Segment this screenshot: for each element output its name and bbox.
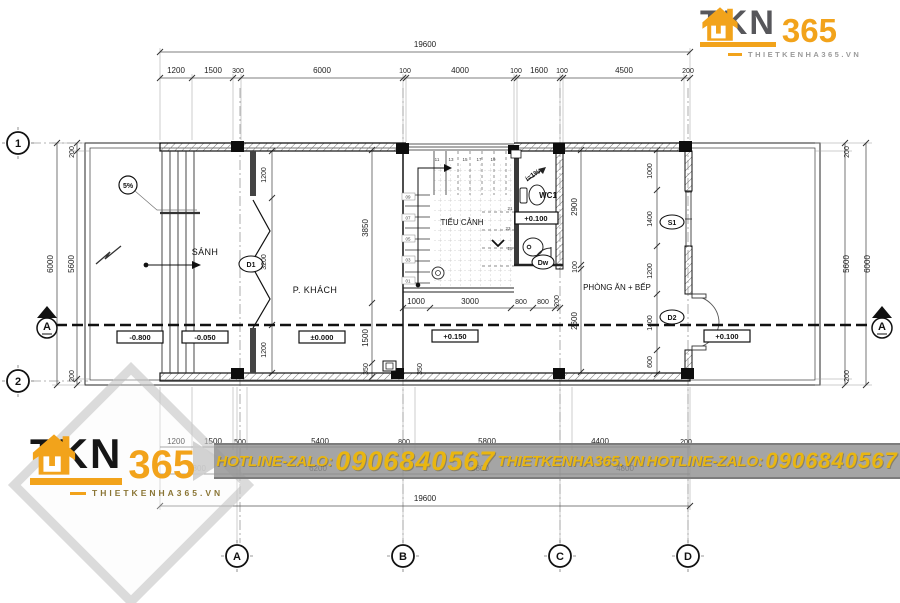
- planter-box: [383, 361, 396, 371]
- svg-text:13: 13: [448, 157, 454, 162]
- svg-text:1600: 1600: [530, 66, 548, 75]
- website-text: THIETKENHA365.VN: [498, 453, 645, 470]
- svg-text:-0.800: -0.800: [129, 333, 150, 342]
- svg-text:19600: 19600: [414, 40, 437, 49]
- svg-text:+0.150: +0.150: [443, 332, 466, 341]
- svg-text:2900: 2900: [570, 198, 579, 216]
- svg-text:17: 17: [476, 157, 482, 162]
- svg-text:100: 100: [510, 68, 522, 75]
- svg-text:03: 03: [405, 258, 411, 263]
- svg-text:1: 1: [15, 138, 21, 150]
- svg-text:100: 100: [399, 68, 411, 75]
- svg-text:19600: 19600: [414, 494, 437, 503]
- ramp-slope-tag: 5%: [119, 176, 197, 210]
- tag-d2: D2: [668, 315, 677, 322]
- room-label-living: P. KHÁCH: [293, 285, 338, 295]
- svg-text:800: 800: [515, 299, 527, 306]
- dimensions-top: 19600 1200 1500 300 6000 100 4000 100 16…: [167, 40, 694, 75]
- room-label-courtyard: TIỂU CẢNH: [440, 218, 483, 227]
- hotline-phone: 0906840567: [335, 446, 495, 477]
- svg-text:200: 200: [69, 370, 76, 382]
- svg-text:1500: 1500: [204, 66, 222, 75]
- svg-text:350: 350: [417, 363, 424, 375]
- svg-text:2600: 2600: [570, 312, 579, 330]
- logo-dash: [70, 492, 86, 495]
- svg-text:25: 25: [507, 246, 513, 251]
- svg-text:1200: 1200: [167, 66, 185, 75]
- svg-text:1400: 1400: [647, 211, 654, 227]
- svg-text:C: C: [556, 551, 564, 563]
- svg-text:200: 200: [844, 370, 851, 382]
- svg-text:01: 01: [405, 279, 411, 284]
- svg-text:100: 100: [572, 261, 579, 273]
- logo-dash: [728, 53, 742, 56]
- svg-text:200: 200: [69, 146, 76, 158]
- svg-text:200: 200: [554, 295, 561, 307]
- svg-text:A: A: [233, 551, 241, 563]
- hotline-banner: HOTLINE-ZALO: 0906840567 THIETKENHA365.V…: [214, 443, 900, 479]
- svg-text:3000: 3000: [461, 297, 479, 306]
- svg-text:1400: 1400: [647, 315, 654, 331]
- svg-text:5600: 5600: [67, 255, 76, 273]
- logo-website: THIETKENHA365.VN: [748, 50, 861, 59]
- wc-vent-box: [511, 150, 521, 158]
- tag-s1: S1: [668, 220, 677, 227]
- svg-text:200: 200: [844, 146, 851, 158]
- svg-text:1500: 1500: [361, 329, 370, 347]
- svg-text:4000: 4000: [451, 66, 469, 75]
- svg-text:19: 19: [490, 157, 496, 162]
- svg-text:23: 23: [505, 226, 511, 231]
- svg-text:-0.050: -0.050: [194, 333, 215, 342]
- logo-website: THIETKENHA365.VN: [92, 488, 223, 498]
- room-label-wc: WC1: [539, 191, 557, 200]
- svg-text:15: 15: [462, 157, 468, 162]
- svg-text:6000: 6000: [46, 255, 55, 273]
- ramp-break-line: [96, 246, 121, 264]
- room-label-hall: SÁNH: [192, 247, 219, 257]
- svg-text:+0.100: +0.100: [715, 332, 738, 341]
- svg-text:B: B: [399, 551, 407, 563]
- entry-arrow: [144, 261, 201, 269]
- hotline-label-2: HOTLINE-ZALO:: [646, 453, 763, 470]
- svg-text:5600: 5600: [842, 255, 851, 273]
- svg-text:05: 05: [405, 237, 411, 242]
- svg-text:09: 09: [405, 195, 411, 200]
- svg-text:A: A: [43, 321, 51, 333]
- svg-text:±0.000: ±0.000: [311, 333, 334, 342]
- svg-text:600: 600: [647, 356, 654, 368]
- floor-plan-page: 5% 09 07 05 03 01 11 13: [0, 0, 900, 603]
- svg-text:100: 100: [556, 68, 568, 75]
- svg-text:11: 11: [435, 157, 440, 162]
- svg-text:+0.100: +0.100: [524, 214, 547, 223]
- svg-text:300: 300: [232, 68, 244, 75]
- svg-text:5%: 5%: [123, 183, 134, 190]
- svg-text:350: 350: [363, 363, 370, 375]
- svg-text:A: A: [878, 321, 886, 333]
- hotline-label: HOTLINE-ZALO:: [216, 453, 333, 470]
- svg-text:3850: 3850: [361, 219, 370, 237]
- svg-text:6000: 6000: [313, 66, 331, 75]
- room-label-kitchen: PHÒNG ĂN + BẾP: [583, 282, 651, 292]
- svg-text:6000: 6000: [863, 255, 872, 273]
- brand-suffix: 365: [782, 14, 837, 47]
- dimensions-left: 6000 200 5600 200: [46, 146, 76, 382]
- svg-text:800: 800: [537, 299, 549, 306]
- svg-text:07: 07: [405, 216, 411, 221]
- svg-text:1000: 1000: [647, 163, 654, 179]
- dimensions-right: 6000 200 5600 200: [842, 146, 872, 382]
- tag-dw: Dw: [538, 260, 549, 267]
- svg-text:D: D: [684, 551, 692, 563]
- brand-logo-top: TKN 365 THIETKENHA365.VN: [700, 6, 861, 59]
- hotline-phone-2: 0906840567: [765, 448, 897, 474]
- tag-d1: D1: [247, 262, 256, 269]
- svg-text:200: 200: [682, 68, 694, 75]
- svg-text:1000: 1000: [407, 297, 425, 306]
- svg-text:3200: 3200: [261, 254, 268, 270]
- brand-logo-bottom: TKN 365 THIETKENHA365.VN: [30, 433, 223, 498]
- brand-suffix: 365: [128, 445, 195, 485]
- svg-text:1200: 1200: [647, 263, 654, 279]
- svg-text:1200: 1200: [261, 342, 268, 358]
- svg-text:4500: 4500: [615, 66, 633, 75]
- svg-text:1200: 1200: [261, 167, 268, 183]
- svg-text:2: 2: [15, 376, 21, 388]
- svg-text:21: 21: [507, 206, 513, 211]
